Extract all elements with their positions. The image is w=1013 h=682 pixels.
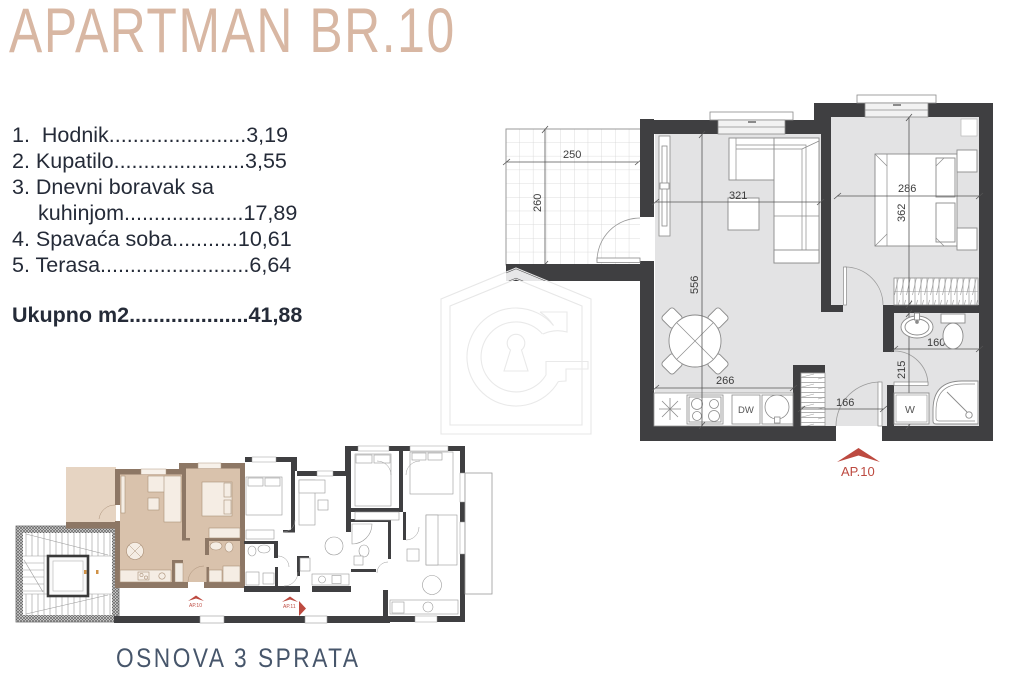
svg-text:DW: DW: [738, 405, 754, 416]
svg-text:AP.11: AP.11: [283, 604, 296, 610]
svg-text:321: 321: [729, 190, 747, 202]
svg-text:W: W: [905, 404, 915, 416]
svg-text:362: 362: [896, 204, 908, 222]
svg-text:266: 266: [716, 375, 734, 387]
svg-text:250: 250: [563, 149, 581, 161]
svg-text:260: 260: [532, 194, 544, 212]
svg-text:AP.10: AP.10: [841, 464, 875, 479]
svg-text:286: 286: [898, 183, 916, 195]
svg-text:AP.10: AP.10: [189, 603, 202, 609]
svg-text:556: 556: [689, 276, 701, 294]
svg-text:160: 160: [927, 337, 945, 349]
svg-text:215: 215: [896, 361, 908, 379]
svg-text:166: 166: [836, 397, 854, 409]
